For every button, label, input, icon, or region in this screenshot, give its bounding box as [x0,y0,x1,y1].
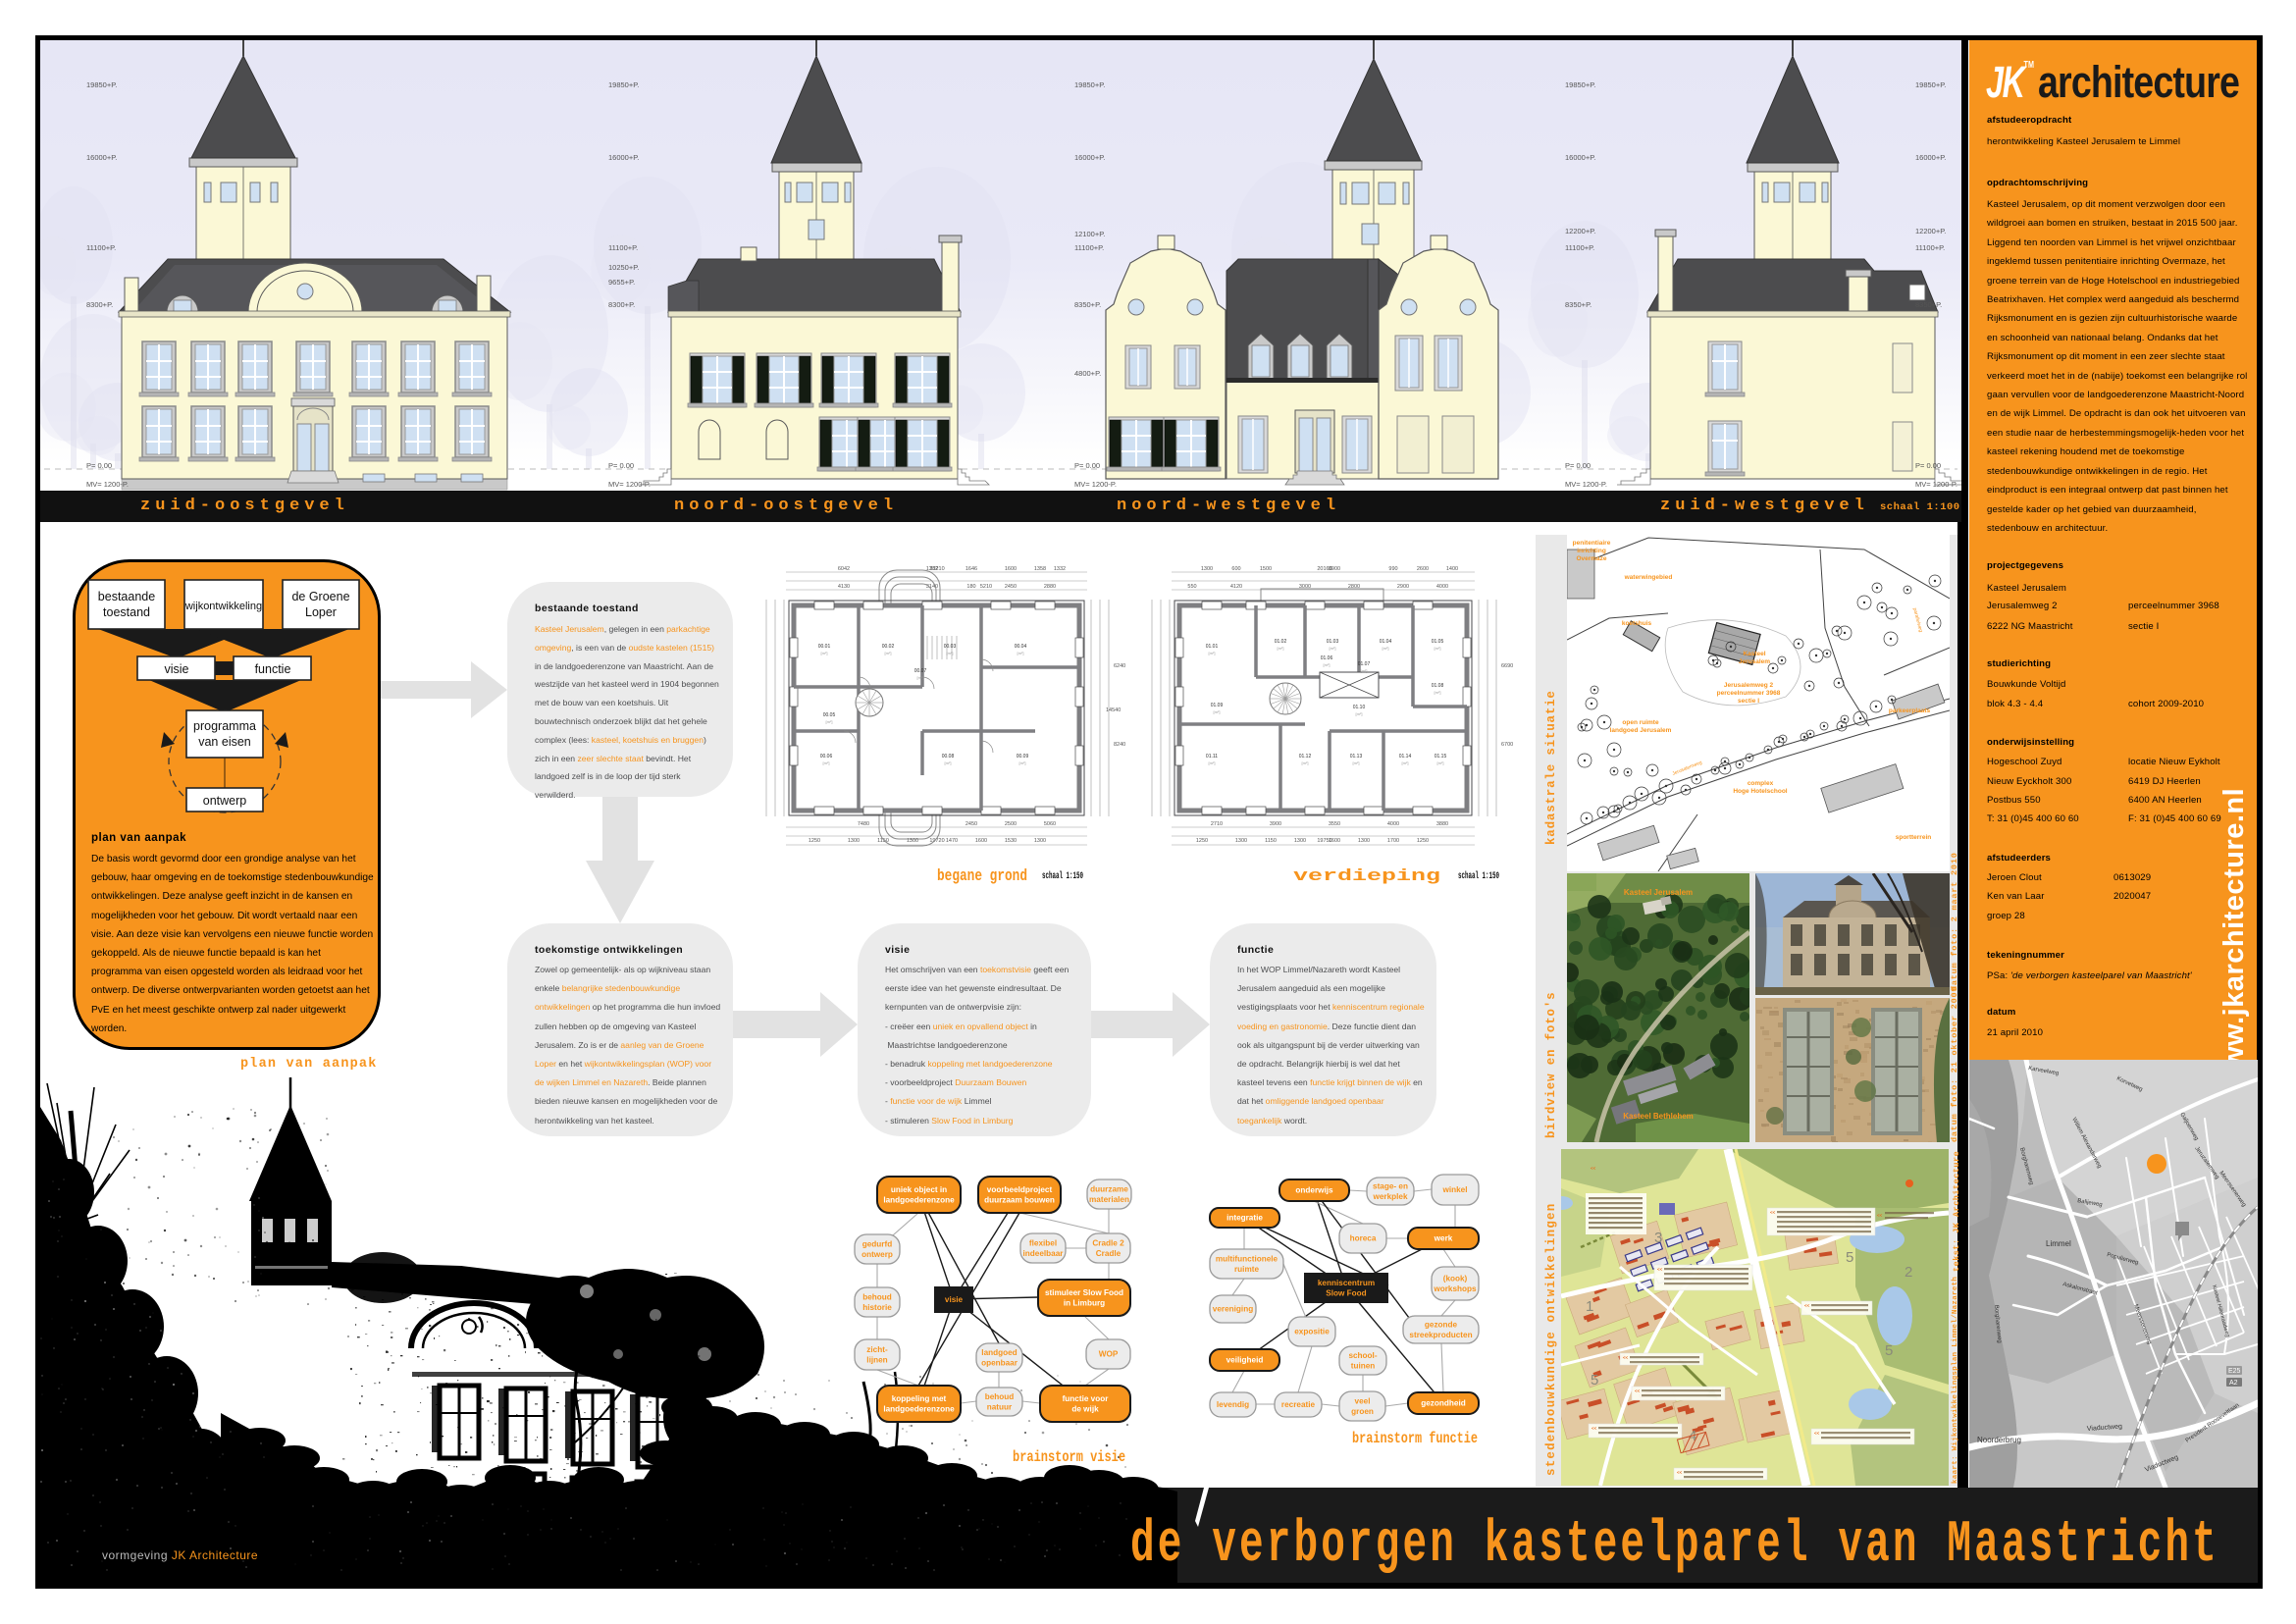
svg-text:groen: groen [1351,1407,1374,1416]
svg-text:01.12: 01.12 [1299,754,1312,760]
svg-text:lijnen: lijnen [866,1355,887,1364]
svg-text:winkel: winkel [1441,1185,1467,1194]
svg-text:A2: A2 [2229,1380,2238,1387]
svg-text:Jerusalem: Jerusalem [1739,658,1770,665]
svg-text:19850+P.: 19850+P. [86,80,117,89]
svg-text:4800+P.: 4800+P. [1074,369,1101,378]
svg-text:Cradle 2: Cradle 2 [1092,1239,1124,1248]
svg-text:1470: 1470 [946,838,958,844]
svg-text:1300: 1300 [1294,838,1306,844]
svg-text:14540: 14540 [1106,707,1121,713]
svg-text:2450: 2450 [1005,584,1017,590]
svg-text:3880: 3880 [1436,821,1448,827]
svg-text:2880: 2880 [1044,584,1056,590]
svg-text:perceelnummer 3968: perceelnummer 3968 [1717,690,1781,697]
svg-text:wijkontwikkeling: wijkontwikkeling [184,601,262,612]
svg-text:20160: 20160 [1317,566,1331,572]
svg-text:19850+P.: 19850+P. [1074,80,1105,89]
svg-text:waterwingebied: waterwingebied [1624,574,1673,581]
svg-text:flexibel: flexibel [1029,1239,1057,1248]
svg-text:[m²]: [m²] [947,651,954,655]
svg-text:[m²]: [m²] [917,675,924,680]
svg-text:8350+P.: 8350+P. [1074,300,1101,309]
svg-text:<<: << [1804,1303,1810,1308]
svg-text:8350+P.: 8350+P. [1915,300,1942,309]
svg-text:Overmaze: Overmaze [1576,555,1606,562]
svg-text:01.06: 01.06 [1321,655,1333,661]
svg-text:16000+P.: 16000+P. [1565,153,1595,162]
svg-text:6700: 6700 [1501,742,1513,748]
svg-text:veel: veel [1355,1397,1371,1406]
svg-text:vereniging: vereniging [1213,1305,1253,1314]
svg-text:00.06: 00.06 [820,754,833,760]
svg-text:[m²]: [m²] [1018,651,1024,655]
svg-text:recreatie: recreatie [1281,1400,1316,1409]
svg-text:tuinen: tuinen [1351,1361,1376,1370]
svg-text:16000+P.: 16000+P. [1915,153,1946,162]
svg-text:4000: 4000 [1387,821,1399,827]
svg-text:ontwerp: ontwerp [203,794,247,808]
svg-text:1358: 1358 [1034,566,1046,572]
svg-text:[m²]: [m²] [1437,760,1444,765]
svg-text:P= 0.00: P= 0.00 [608,461,634,470]
svg-text:<<: << [1814,1431,1820,1436]
svg-text:19850+P.: 19850+P. [1915,80,1946,89]
svg-text:01.04: 01.04 [1380,639,1392,645]
svg-text:5060: 5060 [1044,821,1056,827]
svg-text:WOP: WOP [1099,1350,1119,1359]
svg-text:00.03: 00.03 [944,644,957,650]
svg-text:werkplek: werkplek [1372,1192,1407,1201]
svg-text:00.07: 00.07 [914,668,927,674]
svg-text:1: 1 [1586,1298,1593,1315]
svg-text:2600: 2600 [1417,566,1429,572]
svg-text:[m²]: [m²] [823,760,830,765]
svg-text:MV= 1200-P.: MV= 1200-P. [1565,480,1607,489]
svg-text:de wijk: de wijk [1071,1404,1099,1413]
svg-text:[m²]: [m²] [1402,760,1409,765]
svg-text:in Limburg: in Limburg [1064,1298,1105,1307]
svg-text:1700: 1700 [1387,838,1399,844]
svg-text:ontwerp: ontwerp [861,1250,893,1259]
svg-text:2450: 2450 [965,821,977,827]
svg-text:3: 3 [1654,1230,1662,1246]
svg-text:behoud: behoud [985,1392,1015,1401]
svg-text:gezondheid: gezondheid [1421,1399,1465,1408]
svg-text:[m²]: [m²] [1324,662,1331,667]
svg-text:<<: << [1591,1166,1596,1171]
svg-text:1250: 1250 [809,838,820,844]
svg-text:19750: 19750 [1317,838,1331,844]
svg-text:1600: 1600 [975,838,987,844]
svg-text:2: 2 [1905,1264,1912,1281]
svg-text:visie: visie [164,662,188,676]
svg-text:01.10: 01.10 [1353,705,1366,710]
svg-text:00.04: 00.04 [1015,644,1027,650]
svg-text:koppeling met: koppeling met [892,1394,947,1403]
svg-text:sportterrein: sportterrein [1896,834,1932,841]
svg-text:MV= 1200-P.: MV= 1200-P. [1074,480,1117,489]
svg-text:3900: 3900 [1270,821,1281,827]
svg-text:natuur: natuur [987,1402,1013,1411]
svg-text:5: 5 [1591,1372,1598,1388]
svg-text:expositie: expositie [1294,1328,1330,1336]
svg-text:12100+P.: 12100+P. [1074,230,1105,238]
svg-text:1600: 1600 [1005,566,1017,572]
svg-text:schaal 1:150: schaal 1:150 [1458,870,1499,882]
svg-text:MV= 1200-P.: MV= 1200-P. [608,480,651,489]
svg-text:horeca: horeca [1350,1234,1377,1243]
svg-text:<<: << [1677,1470,1683,1475]
svg-text:indeelbaar: indeelbaar [1023,1249,1065,1258]
svg-text:zicht-: zicht- [866,1345,888,1354]
svg-text:functie voor: functie voor [1063,1394,1110,1403]
svg-text:bestaande: bestaande [98,590,155,603]
svg-text:Limmel: Limmel [2046,1239,2071,1248]
svg-text:1250: 1250 [1417,838,1429,844]
svg-text:12200+P.: 12200+P. [1565,227,1595,236]
svg-text:<<: << [1877,1213,1883,1218]
svg-text:01.14: 01.14 [1399,754,1412,760]
svg-text:5: 5 [1885,1342,1893,1359]
svg-text:gezonde: gezonde [1425,1321,1458,1330]
svg-text:1332: 1332 [1054,566,1066,572]
svg-text:1250: 1250 [1196,838,1208,844]
svg-text:stage- en: stage- en [1373,1182,1408,1191]
svg-text:stimuleer Slow Food: stimuleer Slow Food [1045,1288,1123,1297]
svg-text:Noorderbrug: Noorderbrug [1977,1436,2021,1444]
svg-text:3550: 3550 [1329,821,1340,827]
svg-text:5210: 5210 [980,584,992,590]
svg-text:toestand: toestand [103,605,150,619]
svg-text:complex: complex [1748,780,1774,787]
svg-text:8300+P.: 8300+P. [86,300,113,309]
svg-text:4000: 4000 [1436,584,1448,590]
svg-text:01.03: 01.03 [1327,639,1339,645]
svg-text:6690: 6690 [1501,663,1513,669]
svg-text:16000+P.: 16000+P. [1074,153,1105,162]
svg-text:duurzaam bouwen: duurzaam bouwen [984,1195,1055,1204]
svg-text:01.05: 01.05 [1432,639,1444,645]
svg-text:kenniscentrum: kenniscentrum [1318,1279,1375,1287]
svg-text:11100+P.: 11100+P. [86,243,116,252]
svg-text:8240: 8240 [1114,742,1125,748]
svg-text:open ruimte: open ruimte [1622,719,1659,726]
svg-text:00.08: 00.08 [942,754,955,760]
svg-text:P= 0.00: P= 0.00 [1565,461,1591,470]
svg-text:levendig: levendig [1217,1400,1249,1409]
svg-text:openbaar: openbaar [981,1358,1018,1367]
svg-text:11100+P.: 11100+P. [608,243,638,252]
svg-text:[m²]: [m²] [1214,709,1221,714]
svg-text:11100+P.: 11100+P. [1915,243,1945,252]
svg-text:workshops: workshops [1433,1284,1477,1293]
svg-text:6240: 6240 [1114,663,1125,669]
svg-text:<<: << [1657,1267,1663,1272]
svg-text:1300: 1300 [848,838,860,844]
svg-text:19850+P.: 19850+P. [1565,80,1595,89]
svg-text:parkeerplaats: parkeerplaats [1889,707,1931,714]
svg-text:sectie I: sectie I [1738,698,1759,705]
svg-text:(kook): (kook) [1443,1275,1468,1283]
svg-text:MV= 1200-P.: MV= 1200-P. [86,480,129,489]
svg-text:1300: 1300 [1201,566,1213,572]
svg-text:[m²]: [m²] [1353,760,1360,765]
svg-text:2900: 2900 [1397,584,1409,590]
svg-text:functie: functie [255,662,291,676]
svg-text:streekproducten: streekproducten [1409,1331,1472,1339]
svg-text:visie: visie [945,1295,964,1304]
svg-text:8300+P.: 8300+P. [608,300,635,309]
svg-text:[m²]: [m²] [826,719,833,724]
svg-text:01.11: 01.11 [1206,754,1218,760]
svg-text:990: 990 [1388,566,1397,572]
svg-text:01.09: 01.09 [1211,703,1224,708]
svg-text:9655+P.: 9655+P. [608,278,635,287]
svg-text:landgoederenzone: landgoederenzone [883,1195,955,1204]
svg-text:1150: 1150 [1265,838,1277,844]
svg-text:veiligheid: veiligheid [1226,1356,1264,1365]
svg-text:materialen: materialen [1089,1195,1129,1204]
svg-text:01.15: 01.15 [1435,754,1447,760]
svg-text:01.13: 01.13 [1350,754,1363,760]
svg-text:de Groene: de Groene [291,590,349,603]
svg-text:1300: 1300 [1034,838,1046,844]
svg-text:Hoge Hotelschool: Hoge Hotelschool [1733,788,1787,795]
svg-text:[m²]: [m²] [821,651,828,655]
svg-text:inrichting: inrichting [1577,548,1606,554]
svg-text:Loper: Loper [305,605,337,619]
svg-text:16000+P.: 16000+P. [86,153,117,162]
svg-text:P= 0.00: P= 0.00 [1074,461,1100,470]
svg-text:E25: E25 [2228,1368,2241,1375]
svg-text:<<: << [1623,1355,1629,1360]
svg-text:brainstorm visie: brainstorm visie [1013,1448,1125,1466]
svg-text:[m²]: [m²] [1278,646,1284,651]
svg-text:1500: 1500 [1260,566,1272,572]
svg-text:begane grond: begane grond [937,867,1027,886]
svg-text:4130: 4130 [838,584,850,590]
svg-text:00.01: 00.01 [818,644,831,650]
svg-text:programma: programma [193,719,256,733]
svg-text:verdieping: verdieping [1293,867,1440,886]
svg-text:7480: 7480 [858,821,869,827]
svg-text:van eisen: van eisen [198,735,251,749]
svg-text:multifunctionele: multifunctionele [1216,1255,1278,1264]
svg-text:<<: << [1635,1388,1641,1393]
svg-text:gedurfd: gedurfd [862,1240,892,1249]
svg-text:19850+P.: 19850+P. [608,80,639,89]
svg-text:Cradle: Cradle [1096,1249,1122,1258]
svg-text:<<: << [1592,1426,1597,1431]
svg-text:[m²]: [m²] [1209,651,1216,655]
svg-text:550: 550 [1187,584,1196,590]
svg-text:ruimte: ruimte [1234,1265,1259,1274]
svg-text:[m²]: [m²] [1330,646,1336,651]
svg-text:MV= 1200-P.: MV= 1200-P. [1915,480,1957,489]
svg-text:600: 600 [1231,566,1240,572]
svg-text:[m²]: [m²] [1019,760,1026,765]
svg-text:Kasteel Jerusalem: Kasteel Jerusalem [1624,888,1693,897]
svg-text:1300: 1300 [1235,838,1247,844]
svg-text:historie: historie [862,1303,892,1312]
svg-text:01.02: 01.02 [1275,639,1287,645]
svg-text:school-: school- [1348,1351,1377,1360]
svg-text:[m²]: [m²] [1302,760,1309,765]
svg-text:01.08: 01.08 [1432,683,1444,689]
svg-text:4120: 4120 [1230,584,1242,590]
svg-text:Jerusalemweg 2: Jerusalemweg 2 [1724,682,1774,689]
svg-text:2710: 2710 [1211,821,1223,827]
svg-text:schaal 1:150: schaal 1:150 [1042,870,1083,882]
svg-text:voorbeeldproject: voorbeeldproject [987,1185,1053,1194]
svg-text:1646: 1646 [965,566,977,572]
svg-text:16000+P.: 16000+P. [608,153,639,162]
svg-text:uniek object in: uniek object in [891,1185,947,1194]
svg-text:10250+P.: 10250+P. [608,263,639,272]
svg-text:werk: werk [1434,1234,1453,1243]
svg-text:01.07: 01.07 [1358,661,1371,667]
svg-text:00.05: 00.05 [823,712,836,718]
svg-text:12200+P.: 12200+P. [1915,227,1946,236]
svg-text:<<: << [1770,1210,1776,1215]
svg-text:[m²]: [m²] [1361,668,1368,673]
svg-text:brainstorm functie: brainstorm functie [1352,1430,1478,1447]
svg-text:11100+P.: 11100+P. [1074,243,1104,252]
svg-text:behoud: behoud [862,1293,892,1302]
svg-text:P= 0.00: P= 0.00 [1915,461,1941,470]
svg-text:Kasteel Bethlehem: Kasteel Bethlehem [1623,1112,1694,1121]
svg-text:6042: 6042 [838,566,850,572]
svg-text:8350+P.: 8350+P. [1565,300,1592,309]
svg-text:onderwijs: onderwijs [1295,1186,1333,1195]
svg-text:1400: 1400 [1446,566,1458,572]
svg-text:landgoed: landgoed [981,1348,1017,1357]
svg-text:integratie: integratie [1226,1214,1263,1223]
svg-text:00.09: 00.09 [1017,754,1029,760]
svg-text:koetshuis: koetshuis [1622,620,1652,627]
svg-text:penitentiaire: penitentiaire [1573,540,1611,547]
svg-text:1300: 1300 [1358,838,1370,844]
svg-text:landgoederenzone: landgoederenzone [883,1404,955,1413]
svg-text:[m²]: [m²] [1383,646,1389,651]
svg-text:01.01: 01.01 [1206,644,1219,650]
svg-text:1530: 1530 [1005,838,1017,844]
svg-text:11100+P.: 11100+P. [1565,243,1594,252]
svg-text:[m²]: [m²] [1435,646,1441,651]
svg-text:Slow Food: Slow Food [1326,1288,1366,1297]
svg-text:20210: 20210 [929,566,944,572]
svg-text:[m²]: [m²] [885,651,892,655]
svg-text:duurzame: duurzame [1090,1185,1128,1194]
svg-text:[m²]: [m²] [1209,760,1216,765]
svg-text:[m²]: [m²] [1435,690,1441,695]
svg-text:landgoed Jerusalem: landgoed Jerusalem [1610,727,1672,734]
svg-text:00.02: 00.02 [882,644,895,650]
svg-text:5: 5 [1846,1249,1853,1266]
svg-text:[m²]: [m²] [1356,711,1363,716]
svg-text:P= 0.00: P= 0.00 [86,461,112,470]
svg-text:180: 180 [966,584,975,590]
svg-text:2500: 2500 [1005,821,1017,827]
svg-text:Kasteel: Kasteel [1743,651,1765,657]
svg-text:[m²]: [m²] [945,760,952,765]
